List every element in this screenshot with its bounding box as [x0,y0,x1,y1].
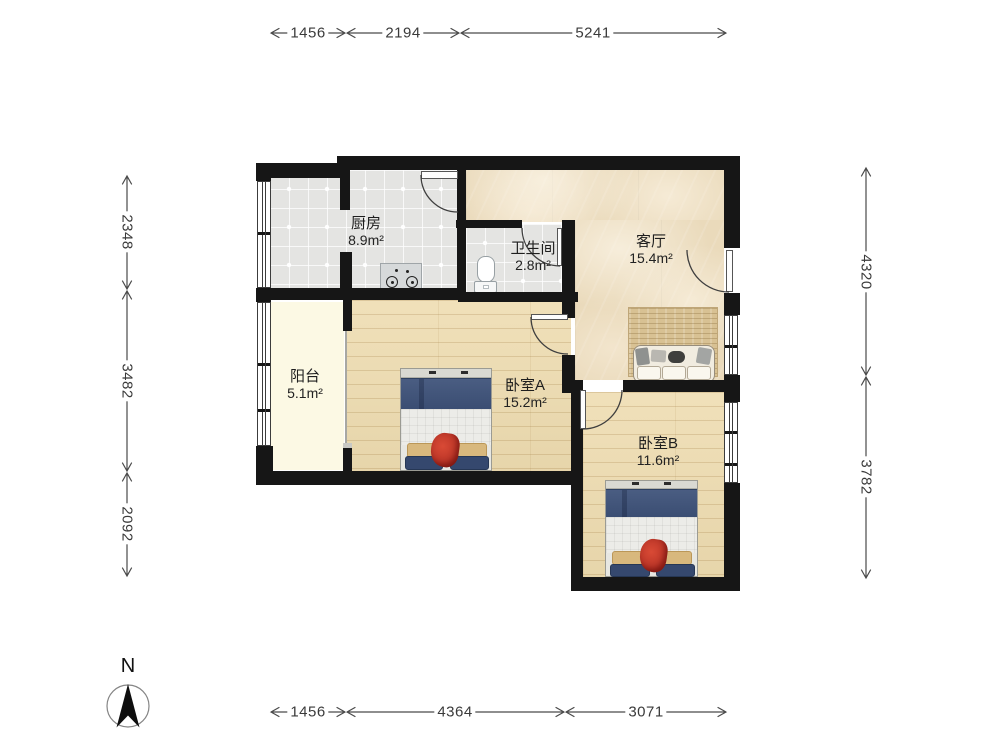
balcony-door-cap [343,443,352,448]
burner-icon [386,276,398,288]
sofa-pillow-left [635,347,650,366]
window-divider [725,345,737,348]
toilet-button [483,285,489,289]
dim-label: 2092 [119,503,136,544]
bed-a [400,368,492,471]
wall-segment [623,380,740,392]
wall-segment [340,252,352,292]
dim-label: 3782 [858,456,875,497]
dim-label: 2348 [119,211,136,252]
dim-label: 3482 [119,360,136,401]
floorplan-canvas: 厨房 8.9m² 卫生间 2.8m² 客厅 15.4m² 阳台 5.1m² 卧室… [0,0,1000,750]
toilet [474,256,498,294]
room-area: 11.6m² [637,452,680,468]
dim-label: 5241 [572,25,613,42]
wall-segment [457,168,466,300]
stove-knob [406,270,409,273]
room-area: 8.9m² [348,232,384,248]
sofa-pillow-mid [651,349,667,362]
blanket-fold [622,490,627,518]
window [257,181,271,288]
footboard-mark [632,482,639,485]
dim-label: 2194 [382,25,423,42]
wall-segment [343,448,352,471]
room-name: 客厅 [629,233,673,250]
room-area: 2.8m² [510,257,555,273]
wall-segment [724,156,740,248]
stove-knob [395,269,398,272]
wall-segment [340,163,350,210]
toilet-bowl [477,256,495,283]
bed-b [605,480,698,577]
bed-a-blanket [401,378,491,410]
burner-icon [406,276,418,288]
wall-segment [724,292,740,315]
dim-label: 3071 [625,704,666,721]
bathroom-door [557,228,562,266]
window-divider [258,363,270,366]
room-label-balcony: 阳台 5.1m² [287,368,323,401]
window-divider [725,431,737,434]
room-label-living: 客厅 15.4m² [629,233,673,266]
room-name: 厨房 [348,215,384,232]
bed-a-footboard [401,369,491,378]
window-divider [258,232,270,235]
footboard-mark [429,371,436,374]
sofa-cushion [637,366,661,380]
window-divider [258,409,270,412]
room-area: 15.2m² [503,394,547,410]
blanket-fold [419,379,424,410]
footboard-mark [664,482,671,485]
dim-label: 4364 [434,704,475,721]
wall-segment [337,156,740,170]
wall-segment [456,220,522,228]
room-name: 卧室B [637,435,680,452]
window [257,302,271,446]
room-label-bathroom: 卫生间 2.8m² [510,240,555,273]
wall-segment [724,375,740,402]
bedroom-a-door [531,314,568,320]
compass-circle [107,685,149,727]
room-name: 卧室A [503,377,547,394]
balcony-opening [345,331,347,448]
room-label-kitchen: 厨房 8.9m² [348,215,384,248]
wall-segment [256,471,583,485]
living-floor-hall [466,170,724,222]
window [724,402,738,483]
room-label-bedroom-a: 卧室A 15.2m² [503,377,547,410]
footboard-mark [461,371,468,374]
sofa-cushion [687,366,711,380]
north-label: N [121,655,135,678]
sofa-pillow-right [696,347,713,365]
kitchen-door [421,171,458,179]
room-name: 卫生间 [510,240,555,257]
dim-label: 4320 [858,251,875,292]
room-area: 5.1m² [287,385,323,401]
wall-segment [256,288,466,300]
wall-segment [724,483,740,591]
wall-segment [571,577,740,591]
room-area: 15.4m² [629,250,673,266]
window-divider [725,463,737,466]
bed-b-blanket [606,489,697,518]
compass-needle [117,684,140,728]
bedroom-b-door [580,390,586,429]
room-name: 阳台 [287,368,323,385]
dim-label: 1456 [287,25,328,42]
room-label-bedroom-b: 卧室B 11.6m² [637,435,680,468]
sofa-tray [668,351,685,363]
dim-label: 1456 [287,704,328,721]
entry-door [726,250,733,292]
bed-b-footboard [606,481,697,489]
sofa [633,345,715,383]
wall-segment [458,292,578,302]
sofa-cushion [662,366,686,380]
compass [107,684,149,728]
wall-segment [256,163,271,181]
window [724,315,738,375]
stove [380,263,422,290]
wall-segment [343,297,352,331]
wall-segment [562,220,575,318]
